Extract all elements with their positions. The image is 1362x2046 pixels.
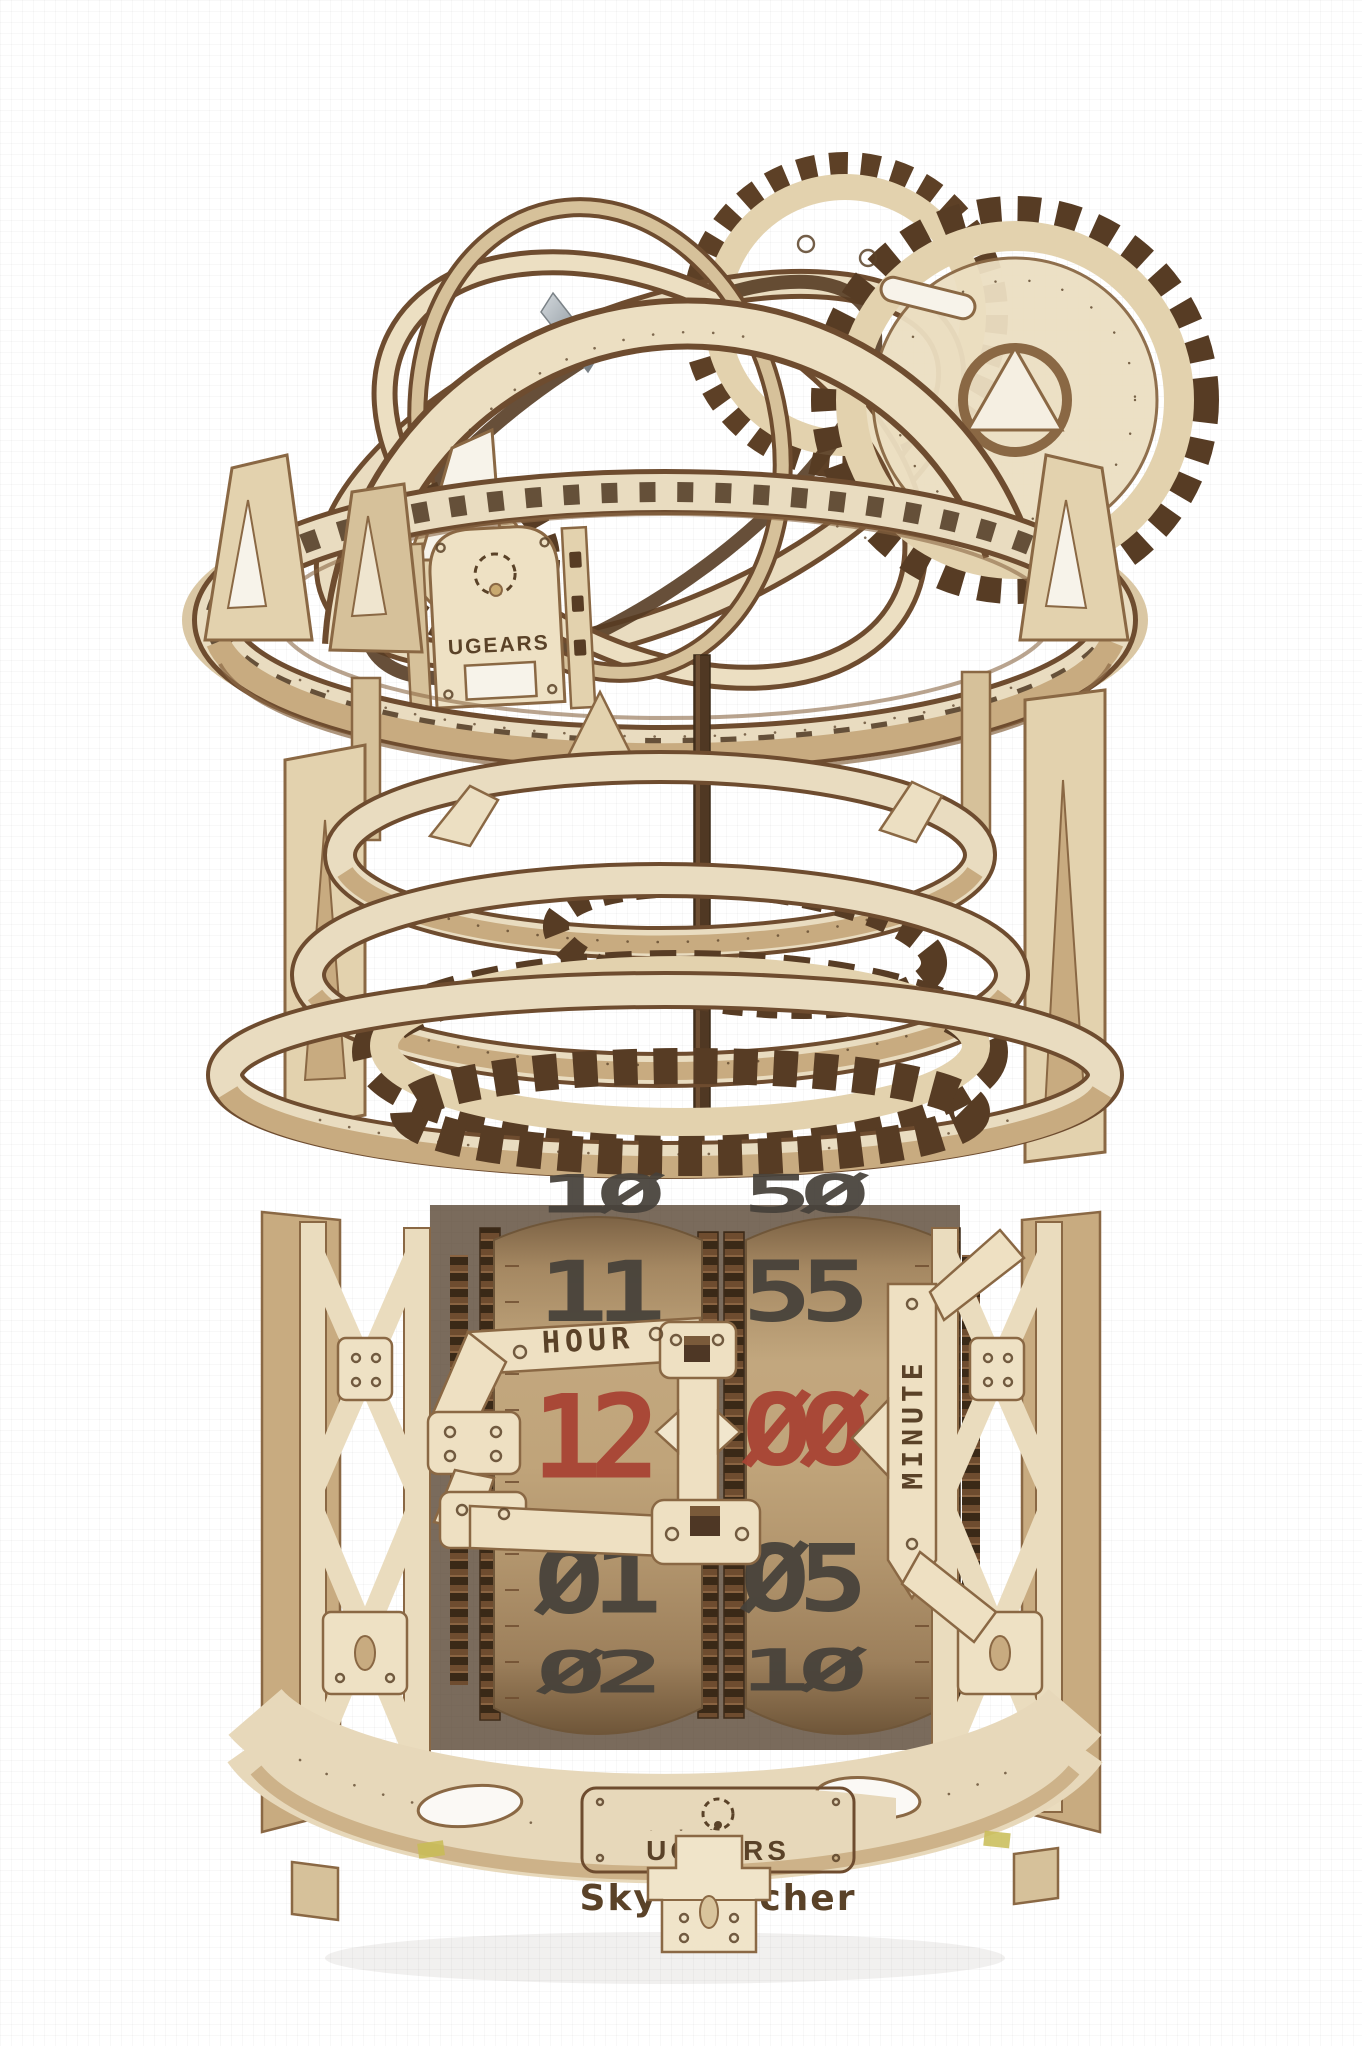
hour-digit-row4: Ø2	[535, 1639, 655, 1707]
frame-center-post	[678, 1366, 718, 1516]
plate-window	[465, 662, 537, 700]
ring-truss-left	[205, 455, 312, 640]
frame-plate-left	[428, 1412, 520, 1474]
product-photo-stage: UGEARS	[0, 0, 1362, 2046]
minute-digit-row1: 55	[742, 1244, 862, 1342]
sky-watcher-model-illustration: UGEARS	[0, 0, 1362, 2046]
side-foot-left	[292, 1862, 338, 1920]
minute-digit-row0: 5Ø	[742, 1165, 869, 1225]
hour-label: HOUR	[541, 1321, 635, 1361]
hour-digit-row0: 1Ø	[538, 1165, 665, 1225]
minute-label: MINUTE	[896, 1358, 929, 1489]
minute-digit-current: ØØ	[741, 1374, 870, 1488]
minute-digit-row4: 1Ø	[740, 1637, 867, 1705]
hour-digit-current: 12	[532, 1371, 651, 1506]
side-foot-right	[1014, 1848, 1058, 1904]
